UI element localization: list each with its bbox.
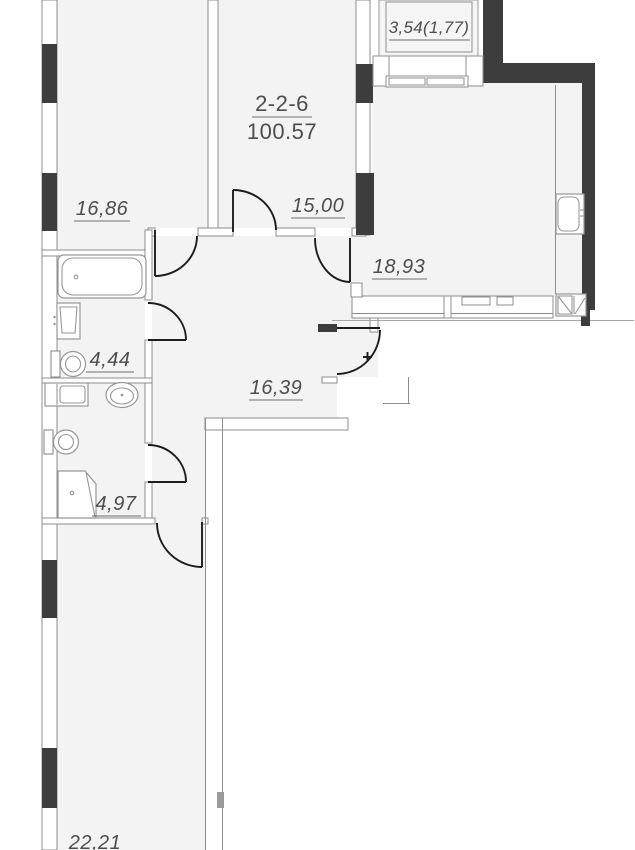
vanity-sink-icon bbox=[53, 303, 80, 339]
room-bottom-top-wall bbox=[42, 518, 155, 524]
hallway-south-wall bbox=[205, 418, 348, 430]
room-bottom-area-label: 22,21 bbox=[68, 832, 122, 850]
vent-shaft-icon bbox=[556, 294, 586, 316]
bathtub-icon bbox=[58, 255, 146, 298]
partition-top-rooms bbox=[208, 0, 218, 228]
round-sink-icon bbox=[106, 383, 138, 408]
toilet2-icon bbox=[44, 430, 79, 454]
room-bottom-fill bbox=[57, 523, 205, 850]
floor-plan-drawing: 2-2-6 100.57 16,86 15,00 3,54(1,77) 18,9… bbox=[0, 0, 635, 850]
left-exterior-wall bbox=[42, 0, 57, 850]
unit-code-label: 2-2-6 bbox=[255, 91, 309, 116]
bathroom-small-area-label: 4,44 bbox=[90, 349, 131, 371]
hallway-area-label: 16,39 bbox=[250, 377, 303, 399]
room-top-left-area-label: 16,86 bbox=[76, 198, 129, 220]
bathroom-large-area-label: 4,97 bbox=[96, 493, 137, 515]
kitchen-area-label: 18,93 bbox=[373, 256, 426, 278]
balcony-threshold bbox=[389, 56, 466, 76]
toilet-icon bbox=[51, 351, 86, 377]
total-area-label: 100.57 bbox=[247, 119, 317, 144]
balcony-area-label: 3,54(1,77) bbox=[389, 18, 470, 37]
kitchen-sink-icon bbox=[556, 194, 584, 234]
washing-machine-icon bbox=[45, 383, 88, 406]
top-right-wall-v bbox=[483, 0, 503, 65]
shower-icon bbox=[58, 471, 96, 518]
bathroom-divider-wall bbox=[42, 378, 152, 383]
room-top-mid-area-label: 15,00 bbox=[292, 195, 345, 217]
top-right-wall-h bbox=[483, 63, 595, 83]
kitchen-window bbox=[352, 296, 553, 318]
floor-plan-page: 2-2-6 100.57 16,86 15,00 3,54(1,77) 18,9… bbox=[0, 0, 635, 850]
